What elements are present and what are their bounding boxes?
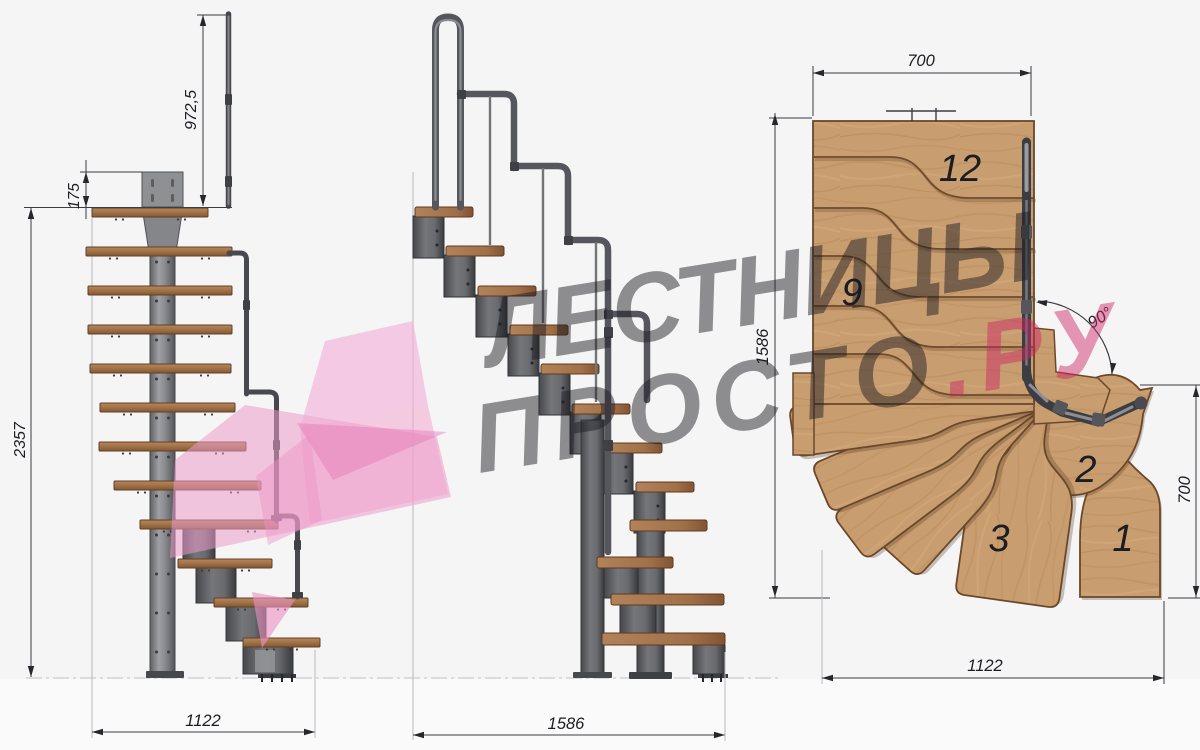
- svg-text:1: 1: [1112, 518, 1133, 560]
- svg-text:700: 700: [907, 52, 935, 70]
- svg-text:972,5: 972,5: [183, 90, 200, 130]
- svg-text:12: 12: [939, 148, 981, 190]
- svg-text:175: 175: [66, 183, 83, 209]
- svg-text:2357: 2357: [12, 421, 29, 459]
- svg-text:3: 3: [988, 518, 1009, 560]
- svg-text:1122: 1122: [967, 657, 1002, 675]
- svg-text:1586: 1586: [548, 715, 586, 733]
- svg-text:2: 2: [1074, 449, 1096, 491]
- svg-text:700: 700: [1176, 475, 1194, 503]
- svg-text:1122: 1122: [185, 712, 220, 730]
